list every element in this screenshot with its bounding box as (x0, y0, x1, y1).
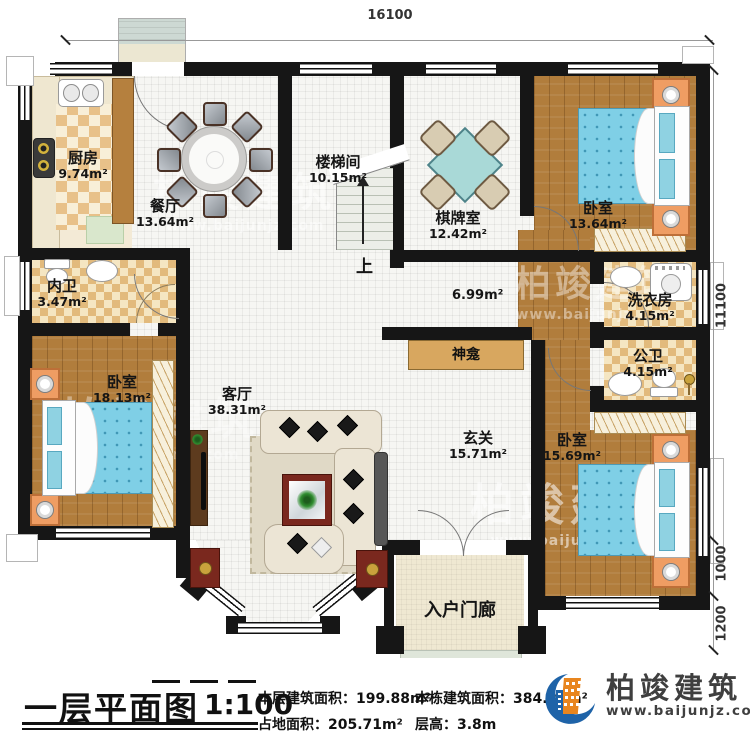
side-table (190, 548, 220, 588)
dining-chair (157, 148, 181, 172)
window (568, 63, 658, 75)
title-dash (190, 680, 218, 683)
gold-ornament (199, 562, 212, 575)
room-label-gameroom: 棋牌室12.42m² (416, 210, 500, 242)
head-cushion (47, 451, 62, 489)
dimension-height: 11100 (715, 276, 730, 336)
room-label-stairhall: 楼梯间10.15m² (296, 154, 380, 186)
dining-table (181, 126, 247, 192)
ac-pad (6, 534, 38, 562)
wall (18, 323, 130, 336)
room-label-dining: 餐厅13.64m² (125, 198, 205, 230)
nightstand (652, 202, 690, 236)
window (19, 80, 31, 120)
dimension-1200: 1200 (715, 602, 730, 646)
room-label-ensuite: 内卫3.47m² (22, 278, 102, 310)
room-label-foyer: 玄关15.71m² (438, 430, 518, 462)
window (50, 63, 112, 75)
wall (18, 248, 190, 260)
wall (382, 327, 532, 340)
head-cushion (659, 513, 675, 551)
room-label-bedroom1: 卧室13.64m² (556, 200, 640, 232)
corridor-area-label: 6.99m² (452, 288, 503, 303)
window (697, 468, 709, 556)
side-table (356, 550, 388, 588)
dimension-1000: 1000 (715, 542, 730, 586)
company-url: www.baijunjz.com (606, 703, 750, 719)
kitchen-sink (58, 79, 104, 107)
lamp (662, 563, 680, 581)
plant-icon (297, 490, 317, 510)
gold-ornament (366, 563, 379, 576)
dimension-line-top (65, 40, 713, 41)
wall (659, 596, 710, 610)
lamp (662, 86, 680, 104)
title-block: 一层平面图 1:100 本层建筑面积：199.88m² 占地面积：205.71m… (0, 658, 750, 744)
room-label-bedroom2: 卧室18.13m² (82, 374, 162, 406)
dining-chair (249, 148, 273, 172)
stat-storey-height: 层高：3.8m (415, 714, 496, 734)
wall (590, 400, 696, 412)
sofa-chaise (264, 524, 344, 574)
floor-plan: 柏竣建筑www.baijunjz.com 柏竣建筑www.baijunjz.co… (0, 0, 750, 744)
stat-footprint: 占地面积：205.71m² (258, 714, 403, 734)
dimension-width: 16100 (359, 8, 421, 23)
head-cushion (659, 159, 675, 199)
window (426, 63, 496, 75)
room-label-laundry: 洗衣房4.15m² (608, 292, 692, 324)
bed-headboard (654, 462, 690, 558)
wardrobe (594, 412, 686, 434)
toilet-icon (650, 387, 678, 397)
window (566, 597, 659, 609)
porch-column (376, 626, 404, 654)
window (56, 527, 150, 539)
lamp (36, 375, 54, 393)
window (697, 270, 709, 324)
wall (278, 76, 292, 250)
title-dash (152, 680, 180, 683)
dining-chair (203, 102, 227, 126)
wall (590, 262, 604, 284)
nightstand (30, 368, 60, 400)
nightstand (30, 494, 60, 526)
wall (520, 76, 534, 216)
porch-label: 入户门廊 (398, 596, 522, 622)
bay-window (238, 622, 322, 634)
sink-basin (63, 84, 80, 102)
room-label-living: 客厅38.31m² (197, 386, 277, 418)
dining-chair (203, 194, 227, 218)
company-logo-text: 柏竣建筑 www.baijunjz.com (606, 674, 750, 719)
wall (404, 250, 534, 262)
coffee-table (282, 474, 332, 526)
nightstand (652, 556, 690, 588)
head-cushion (659, 469, 675, 507)
sink-basin (82, 84, 99, 102)
lamp (662, 210, 680, 228)
window-sill (6, 56, 34, 86)
stairs-arrow-line (362, 184, 364, 244)
company-logo-icon (538, 666, 602, 732)
tv-icon (201, 452, 206, 510)
window-sill (682, 46, 714, 64)
shrine-label: 神龛 (452, 347, 480, 363)
wall (320, 616, 340, 634)
room-label-bedroom3: 卧室15.69m² (532, 432, 612, 464)
title-dash (228, 680, 256, 683)
head-cushion (659, 113, 675, 153)
dining-table-center (206, 151, 224, 169)
washer-controls (655, 266, 685, 270)
porch-column (518, 626, 546, 654)
bed-headboard (42, 400, 76, 496)
room-label-kitchen: 厨房9.74m² (43, 150, 123, 182)
window (300, 63, 372, 75)
title-underline (22, 722, 258, 725)
lamp (36, 501, 54, 519)
wall (506, 540, 545, 555)
stat-floor-area: 本层建筑面积：199.88m² (258, 688, 431, 708)
hifi-cabinet (374, 452, 388, 546)
porch-wall (528, 555, 538, 627)
rear-door-opening (132, 62, 184, 76)
company-name: 柏竣建筑 (606, 674, 750, 703)
shrine: 神龛 (408, 340, 524, 370)
head-cushion (47, 407, 62, 445)
wall (534, 596, 566, 610)
stairs-up-label: 上 (356, 252, 373, 277)
lamp (662, 441, 680, 459)
window-sill (4, 256, 20, 316)
rear-porch (118, 18, 186, 64)
wall (604, 327, 696, 340)
bed-headboard (654, 106, 690, 206)
room-label-bath: 公卫4.15m² (608, 348, 688, 380)
wall (590, 322, 604, 348)
title-underline (22, 728, 258, 730)
floor-drain-stem (688, 383, 690, 395)
laundry-sink-icon (610, 266, 642, 288)
plant-small-icon (192, 434, 203, 445)
wall (158, 323, 190, 336)
